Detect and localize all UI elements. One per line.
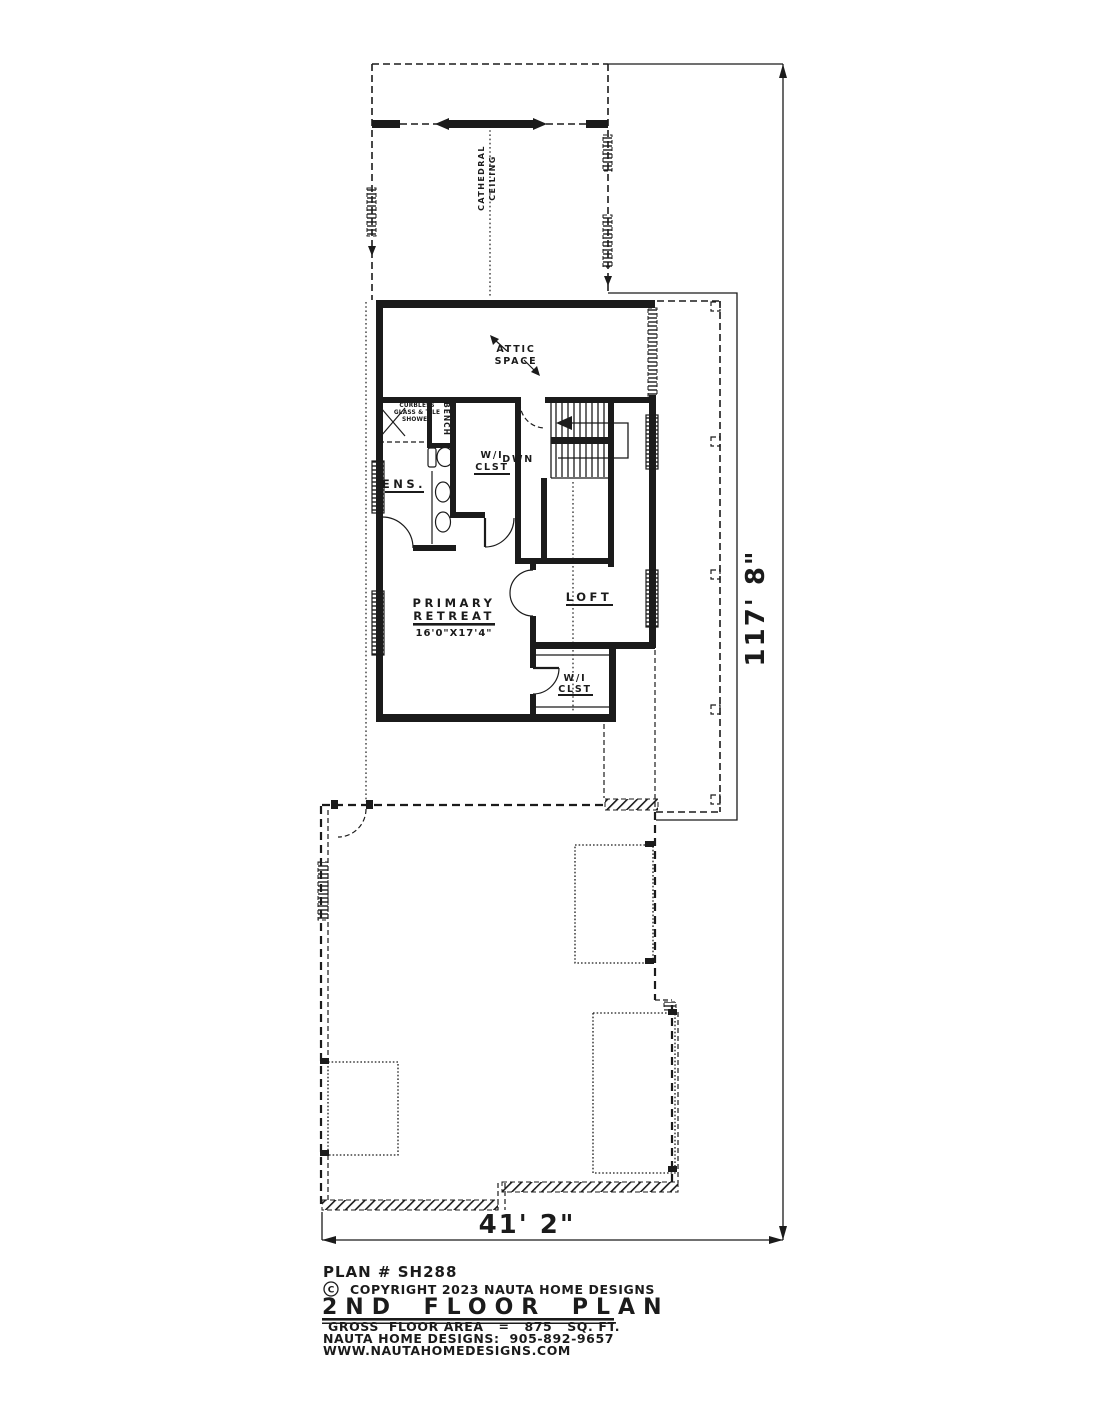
stair-direction-arrow (556, 416, 572, 430)
copyright-icon-letter: C (328, 1286, 335, 1296)
closet-upper-label-2: CLST (475, 462, 509, 473)
primary-label-2: RETREAT (413, 609, 495, 623)
cathedral-ceiling-area: CATHEDRAL CEILING (367, 118, 612, 298)
cathedral-ceiling-label: CATHEDRAL (477, 145, 486, 211)
door-jamb-below (331, 800, 338, 809)
width-dimension-label: 41' 2" (479, 1210, 576, 1240)
right-porch-roof (608, 293, 737, 820)
porch-post (711, 437, 720, 446)
primary-double-door (510, 570, 533, 593)
toilet-tank (428, 448, 436, 467)
porch-post (711, 302, 720, 311)
attic-label-2: SPACE (495, 356, 538, 367)
beam-arrow-left (435, 118, 449, 130)
primary-size-label: 16'0"X17'4" (415, 628, 492, 639)
wall-below-hatch (318, 862, 328, 920)
dimension-width: 41' 2" (322, 1210, 783, 1244)
floor-plan-drawing: CATHEDRAL CEILING (0, 0, 1100, 1424)
cathedral-ceiling-label-2: CEILING (488, 155, 497, 200)
website-line: WWW.NAUTAHOMEDESIGNS.COM (323, 1343, 571, 1358)
stair-landing (551, 437, 610, 444)
closet-upper-door (485, 518, 514, 547)
porch-post (711, 570, 720, 579)
title-block: PLAN # SH288 C COPYRIGHT 2023 NAUTA HOME… (322, 1263, 670, 1358)
plan-number: PLAN # SH288 (323, 1263, 457, 1281)
closet-upper-label: W/I (481, 450, 504, 461)
beam-arrow-right (533, 118, 547, 130)
attic-access-door (520, 403, 545, 428)
attic-leader-arrow (531, 366, 540, 376)
window (646, 415, 658, 469)
porch-post (711, 795, 720, 804)
door-below-swing (338, 809, 366, 837)
window (646, 570, 658, 627)
shower-label: CURBLESS (399, 403, 434, 409)
attic-label: ATTIC (496, 344, 535, 355)
closet-lower-label-2: CLST (558, 684, 592, 695)
roof-feature-rect (575, 845, 653, 963)
ensuite-label: ENS. (382, 477, 426, 491)
closet-lower-door (533, 668, 559, 694)
lower-roof-outline (318, 799, 678, 1210)
roof-feature-rect (593, 1013, 675, 1173)
shower-label-3: SHOWER (402, 417, 432, 423)
dimension-depth: 117' 8" (741, 64, 787, 1240)
porch-post (711, 705, 720, 714)
wall-below-hatch (605, 799, 658, 810)
ensuite-door (381, 517, 413, 548)
wall-below-hatch (502, 1182, 678, 1192)
door-jamb-below (366, 800, 373, 809)
wall-below-hatch (664, 1002, 676, 1010)
window (372, 591, 384, 655)
closet-lower-label: W/I (564, 673, 587, 684)
sink (436, 512, 451, 532)
loft-label: LOFT (566, 590, 612, 604)
primary-label: PRIMARY (413, 596, 496, 610)
floor-plan-sheet: CATHEDRAL CEILING (0, 0, 1100, 1424)
sink (436, 482, 451, 502)
room-labels: ATTIC SPACE CURBLESS GLASS & TILE SHOWER… (382, 335, 613, 695)
roof-feature-rect (328, 1062, 398, 1155)
wall-below-hatch (322, 1200, 498, 1210)
depth-dimension-label: 117' 8" (741, 550, 771, 667)
attic-knee-wall (648, 308, 657, 396)
primary-double-door (510, 593, 533, 616)
bench-label: BENCH (442, 402, 451, 436)
shower-label-2: GLASS & TILE (394, 410, 440, 416)
sheet-title: 2ND FLOOR PLAN (322, 1295, 670, 1320)
